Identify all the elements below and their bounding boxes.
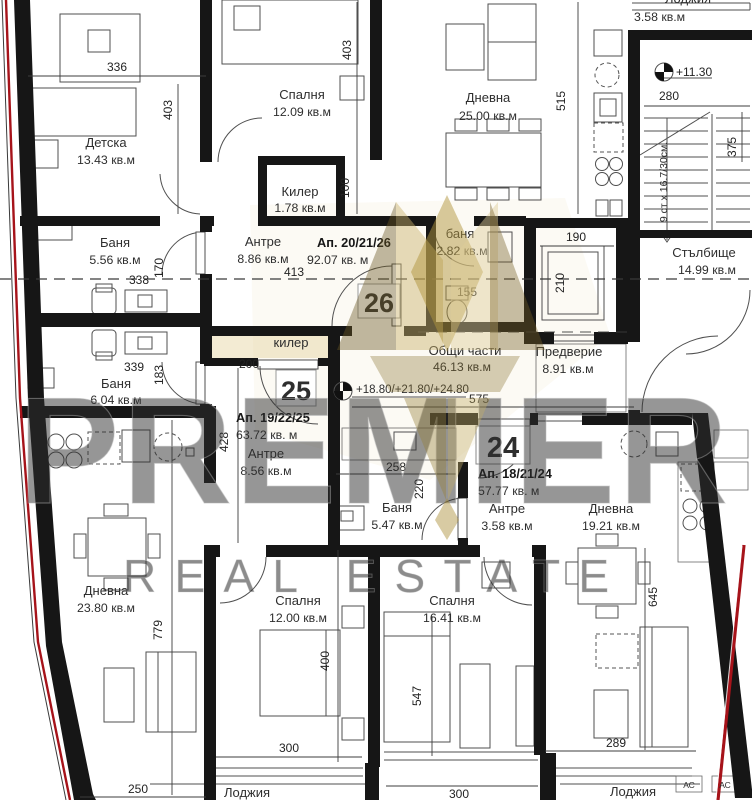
dim-413: 413	[284, 265, 304, 279]
watermark-brand-text: PREMIER	[18, 366, 732, 536]
floor-plan-drawing: 26 25 24 Детска 13.43 кв.м Спалня 12.09 …	[0, 0, 752, 800]
room-area-spalnya1209: 12.09 кв.м	[273, 105, 331, 119]
room-name-detska: Детска	[85, 135, 127, 150]
room-area-banya556: 5.56 кв.м	[89, 253, 140, 267]
dim-289: 289	[606, 736, 626, 750]
dim-403-right: 403	[340, 40, 354, 60]
dim-338: 338	[129, 273, 149, 287]
room-area-spalnya1641: 16.41 кв.м	[423, 611, 481, 625]
stairs-note: 9 ст х 16.7/30см.	[658, 142, 670, 222]
room-area-stalbishte: 14.99 кв.м	[678, 263, 736, 277]
room-name-loggia-br: Лоджия	[610, 784, 656, 799]
room-name-antre886: Антре	[245, 234, 281, 249]
floor-plan-page: 26 25 24 Детска 13.43 кв.м Спалня 12.09 …	[0, 0, 752, 800]
dim-210: 210	[553, 273, 567, 293]
ac-unit-label-1: АС	[683, 780, 695, 790]
room-name-spalnya1209: Спалня	[279, 87, 324, 102]
room-name-kiler2: килер	[274, 335, 309, 350]
room-area-spalnya1200: 12.00 кв.м	[269, 611, 327, 625]
dim-375: 375	[725, 137, 739, 157]
dim-400: 400	[318, 651, 332, 671]
room-name-predverie: Предверие	[536, 344, 603, 359]
room-area-detska: 13.43 кв.м	[77, 153, 135, 167]
room-name-stalbishte: Стълбище	[672, 245, 736, 260]
dim-547: 547	[410, 686, 424, 706]
staircase	[640, 112, 750, 242]
level-upper: +11.30	[676, 65, 712, 79]
dim-300-right: 300	[449, 787, 469, 800]
room-name-kiler: Килер	[282, 184, 319, 199]
room-area-dnevna2380: 23.80 кв.м	[77, 601, 135, 615]
dim-250: 250	[128, 782, 148, 796]
watermark-tagline-text: REAL ESTATE	[123, 550, 623, 602]
dim-280: 280	[659, 89, 679, 103]
dim-170: 170	[152, 258, 166, 278]
dim-190: 190	[566, 230, 586, 244]
room-name-banya556: Баня	[100, 235, 130, 250]
apartment-area-26: 92.07 кв. м	[307, 253, 368, 267]
room-name-dnevna25: Дневна	[466, 90, 511, 105]
room-area-dnevna25: 25.00 кв.м	[459, 109, 517, 123]
ac-unit-label-2: АС	[719, 780, 731, 790]
room-name-loggia-bl: Лоджия	[224, 785, 270, 800]
dim-336: 336	[107, 60, 127, 74]
room-name-loggia-top: Лоджия	[665, 0, 711, 6]
dim-403-left: 403	[161, 100, 175, 120]
dim-300-left: 300	[279, 741, 299, 755]
dim-100: 100	[338, 178, 352, 198]
room-area-antre886: 8.86 кв.м	[237, 252, 288, 266]
room-area-loggia-top: 3.58 кв.м	[634, 10, 685, 24]
dim-779: 779	[151, 620, 165, 640]
dim-515: 515	[554, 91, 568, 111]
room-area-kiler: 1.78 кв.м	[274, 201, 325, 215]
dim-645: 645	[646, 587, 660, 607]
